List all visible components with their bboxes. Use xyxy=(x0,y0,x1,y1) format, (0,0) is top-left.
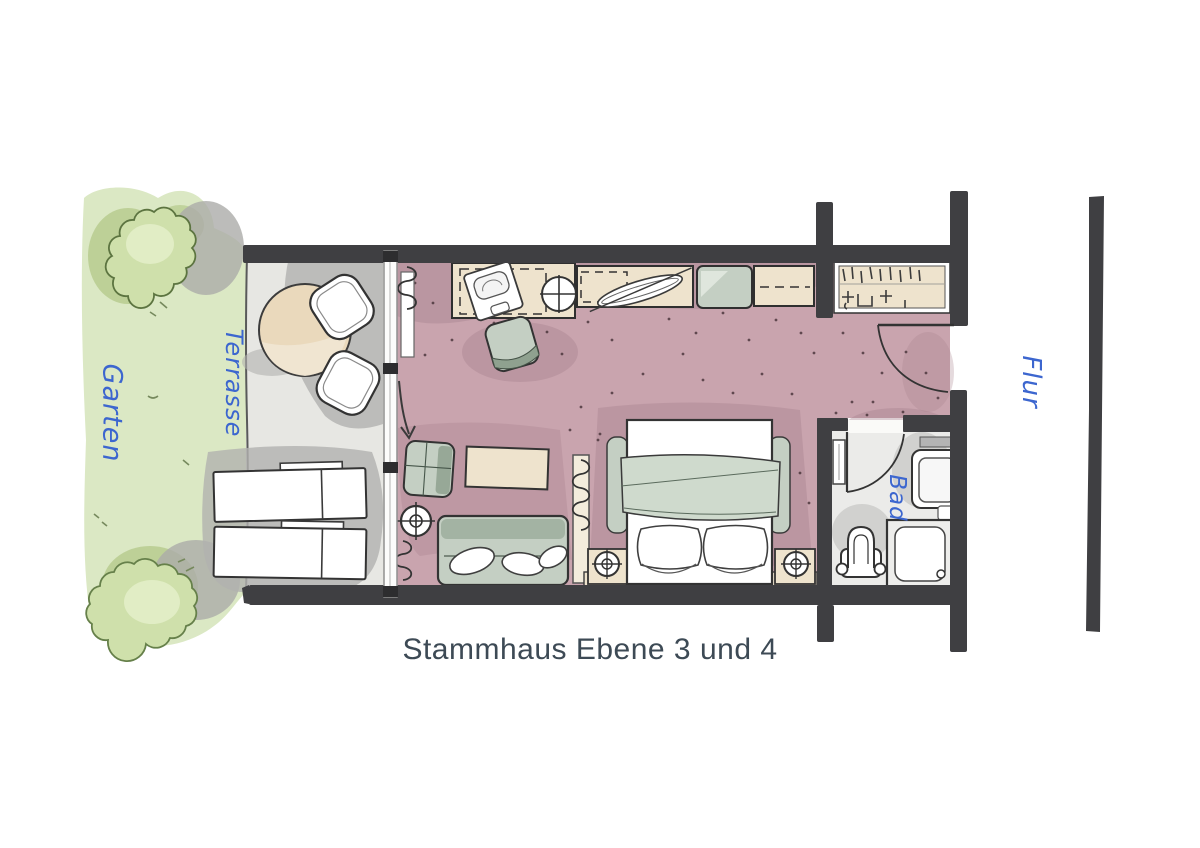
tv-bench xyxy=(697,266,752,308)
garden-label: Garten xyxy=(97,364,128,463)
sun-lounger xyxy=(214,520,367,580)
terrace-label: Terrasse xyxy=(220,329,248,438)
pillow xyxy=(638,526,702,570)
bath-door-threshold xyxy=(848,420,903,433)
cabinet xyxy=(754,266,814,306)
towel-rail xyxy=(833,440,845,484)
shower xyxy=(887,520,953,588)
radiator-icon xyxy=(573,455,590,583)
wardrobe xyxy=(834,261,950,313)
desk xyxy=(452,261,578,321)
radiator-icon xyxy=(398,267,416,357)
coffee-table xyxy=(465,447,548,490)
bed-group xyxy=(584,420,817,590)
armchair xyxy=(403,440,455,497)
sofa xyxy=(438,516,570,585)
floor-plan-drawing xyxy=(0,0,1200,848)
plan-title: Stammhaus Ebene 3 und 4 xyxy=(390,633,790,667)
bathroom-label: Bad xyxy=(884,474,910,521)
hallway-label: Flur xyxy=(1016,355,1046,408)
hallway-wall xyxy=(1086,196,1104,632)
floor-plan-page: Garten Terrasse Flur Bad Stammhaus Ebene… xyxy=(0,0,1200,848)
pillow xyxy=(704,526,768,570)
window-wall xyxy=(383,251,398,597)
